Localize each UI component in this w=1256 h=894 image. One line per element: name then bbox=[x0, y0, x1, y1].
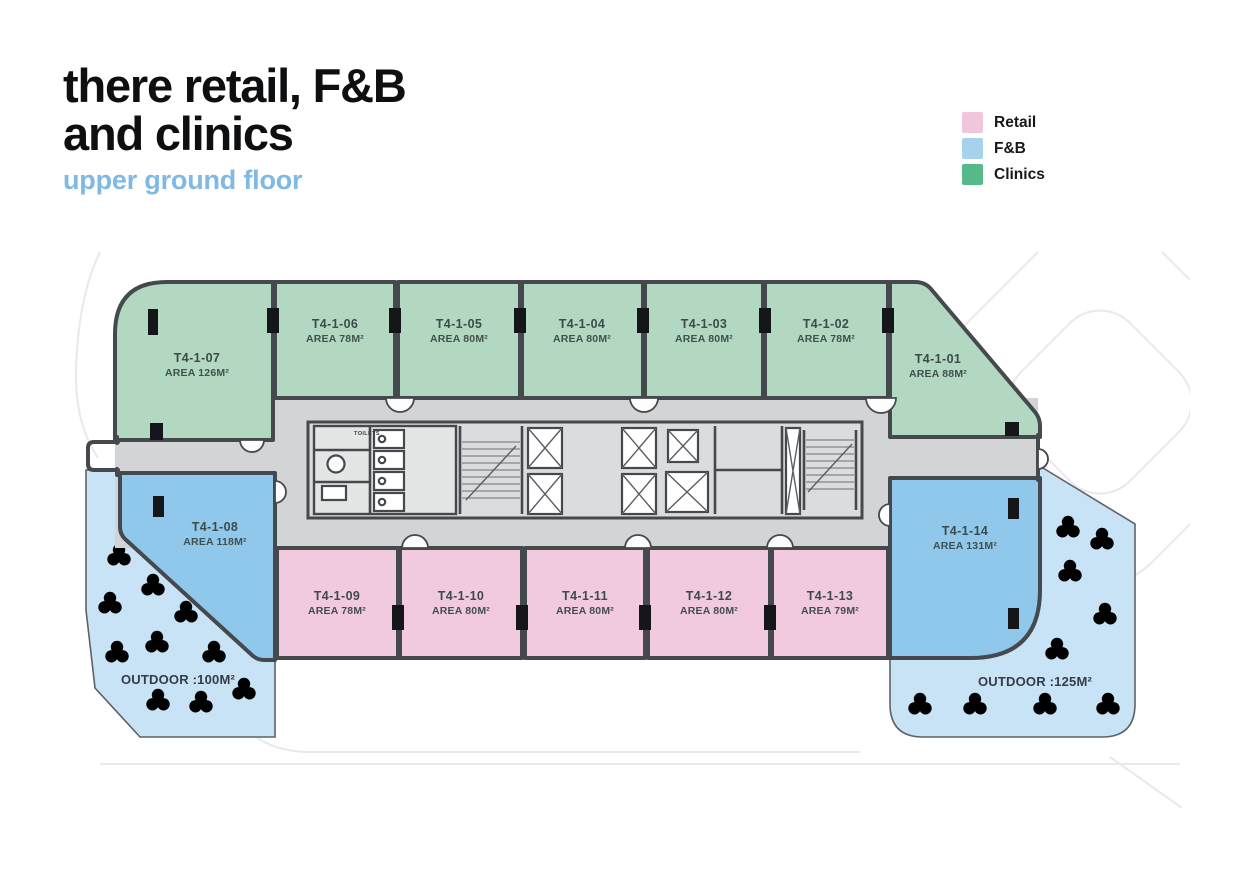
unit-shape bbox=[648, 548, 770, 658]
unit-T4-1-04: T4-1-04 AREA 80M² bbox=[522, 282, 643, 398]
legend-label: Clinics bbox=[994, 166, 1045, 184]
unit-shape bbox=[772, 548, 888, 658]
unit-id-label: T4-1-01 bbox=[915, 352, 962, 366]
unit-area-label: AREA 80M² bbox=[680, 605, 738, 617]
unit-id-label: T4-1-14 bbox=[942, 524, 989, 538]
unit-area-label: AREA 80M² bbox=[430, 333, 488, 345]
legend-label: F&B bbox=[994, 140, 1026, 158]
basin-fixture-icon bbox=[322, 486, 346, 500]
outdoor-left-label: OUTDOOR :100M² bbox=[121, 672, 236, 687]
unit-area-label: AREA 80M² bbox=[675, 333, 733, 345]
unit-id-label: T4-1-13 bbox=[807, 589, 854, 603]
unit-area-label: AREA 78M² bbox=[308, 605, 366, 617]
toilets-label: TOILETS bbox=[354, 431, 380, 437]
unit-area-label: AREA 88M² bbox=[909, 368, 967, 380]
unit-id-label: T4-1-04 bbox=[559, 317, 606, 331]
page: { "header": { "title_line1": "there reta… bbox=[0, 0, 1256, 894]
retail-row: T4-1-09 AREA 78M² T4-1-10 AREA 80M² T4-1… bbox=[277, 548, 888, 658]
unit-T4-1-11: T4-1-11 AREA 80M² bbox=[525, 548, 645, 658]
page-title: there retail, F&Band clinics bbox=[63, 62, 406, 158]
unit-id-label: T4-1-03 bbox=[681, 317, 728, 331]
unit-T4-1-07: T4-1-07 AREA 126M² bbox=[115, 282, 273, 440]
unit-area-label: AREA 126M² bbox=[165, 367, 229, 379]
legend: Retail F&B Clinics bbox=[962, 112, 1045, 185]
unit-id-label: T4-1-12 bbox=[686, 589, 733, 603]
clinics-swatch-icon bbox=[962, 164, 983, 185]
unit-area-label: AREA 78M² bbox=[797, 333, 855, 345]
unit-area-label: AREA 118M² bbox=[183, 536, 247, 548]
retail-swatch-icon bbox=[962, 112, 983, 133]
unit-id-label: T4-1-09 bbox=[314, 589, 361, 603]
fnb-swatch-icon bbox=[962, 138, 983, 159]
building-core: TOILETS bbox=[308, 422, 862, 518]
unit-id-label: T4-1-08 bbox=[192, 520, 239, 534]
west-exit-stub bbox=[88, 442, 118, 470]
unit-shape bbox=[400, 548, 522, 658]
floor-plan: OUTDOOR :100M² OUTDOOR :125M² TOILETS bbox=[70, 252, 1190, 812]
unit-area-label: AREA 78M² bbox=[306, 333, 364, 345]
unit-shape bbox=[525, 548, 645, 658]
title-line-2: and clinics bbox=[63, 107, 293, 160]
unit-area-label: AREA 80M² bbox=[432, 605, 490, 617]
unit-T4-1-01: T4-1-01 AREA 88M² bbox=[890, 282, 1040, 437]
unit-id-label: T4-1-05 bbox=[436, 317, 483, 331]
unit-T4-1-10: T4-1-10 AREA 80M² bbox=[400, 548, 522, 658]
unit-T4-1-05: T4-1-05 AREA 80M² bbox=[398, 282, 520, 398]
legend-item-clinics: Clinics bbox=[962, 164, 1045, 185]
unit-area-label: AREA 79M² bbox=[801, 605, 859, 617]
outdoor-right-label: OUTDOOR :125M² bbox=[978, 674, 1093, 689]
unit-shape bbox=[890, 282, 1040, 437]
toilet-fixture-icon bbox=[328, 456, 345, 473]
unit-T4-1-13: T4-1-13 AREA 79M² bbox=[772, 548, 888, 658]
unit-T4-1-06: T4-1-06 AREA 78M² bbox=[275, 282, 395, 398]
legend-item-fnb: F&B bbox=[962, 138, 1045, 159]
legend-item-retail: Retail bbox=[962, 112, 1045, 133]
unit-area-label: AREA 80M² bbox=[556, 605, 614, 617]
unit-id-label: T4-1-10 bbox=[438, 589, 485, 603]
unit-T4-1-02: T4-1-02 AREA 78M² bbox=[765, 282, 888, 398]
page-header: there retail, F&Band clinics upper groun… bbox=[63, 62, 406, 196]
unit-id-label: T4-1-06 bbox=[312, 317, 359, 331]
unit-id-label: T4-1-11 bbox=[562, 589, 608, 603]
legend-label: Retail bbox=[994, 114, 1036, 132]
title-line-1: there retail, F&B bbox=[63, 59, 406, 112]
unit-id-label: T4-1-07 bbox=[174, 351, 221, 365]
unit-shape bbox=[277, 548, 398, 658]
floor-subtitle: upper ground floor bbox=[63, 165, 406, 196]
unit-area-label: AREA 131M² bbox=[933, 540, 997, 552]
toilets-block: TOILETS bbox=[314, 426, 456, 514]
unit-T4-1-09: T4-1-09 AREA 78M² bbox=[277, 548, 398, 658]
unit-T4-1-12: T4-1-12 AREA 80M² bbox=[648, 548, 770, 658]
unit-area-label: AREA 80M² bbox=[553, 333, 611, 345]
unit-T4-1-03: T4-1-03 AREA 80M² bbox=[645, 282, 763, 398]
unit-id-label: T4-1-02 bbox=[803, 317, 850, 331]
